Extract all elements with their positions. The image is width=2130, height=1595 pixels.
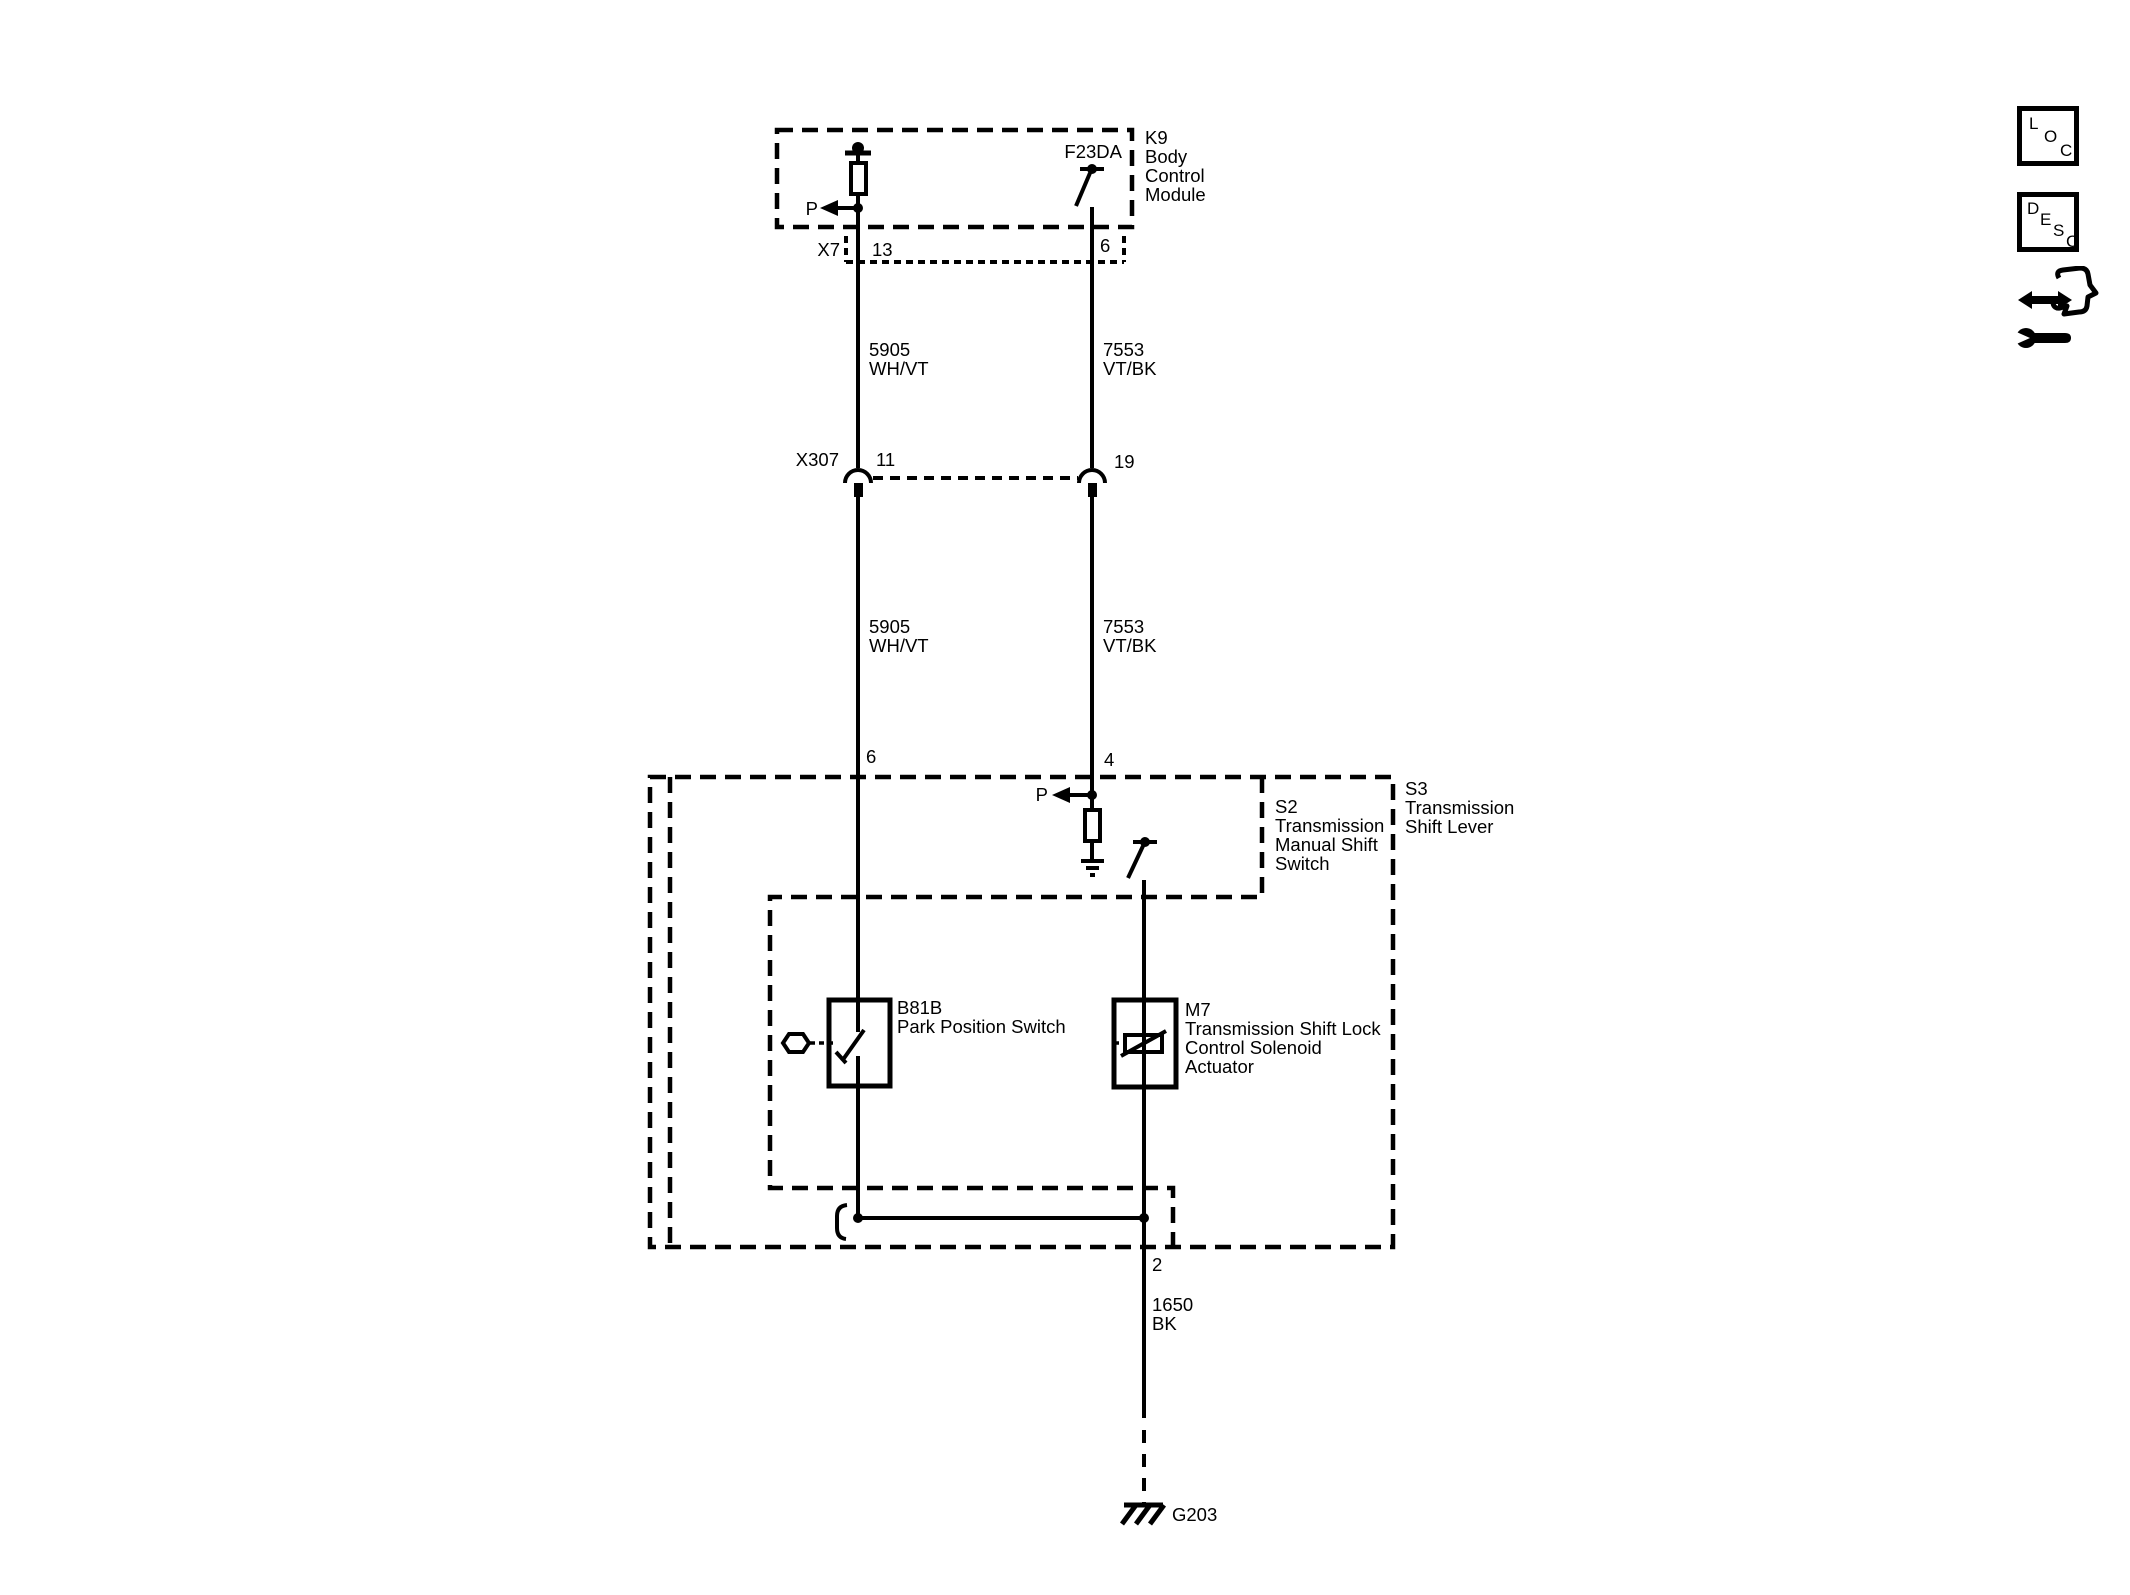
- loc-letter-l: L: [2029, 114, 2038, 134]
- desc-button[interactable]: D E S C: [2017, 192, 2079, 252]
- b81b-switch-blade: [842, 1030, 864, 1061]
- flip-arrow-outline-icon: [2053, 268, 2096, 314]
- s3-name-line2: Shift Lever: [1405, 816, 1493, 837]
- circuit-number: 7553: [1103, 616, 1144, 637]
- x307-pin-11-label: 11: [876, 449, 895, 470]
- k9-ref-label: K9: [1145, 127, 1168, 148]
- wrench-handle-icon: [2032, 333, 2071, 343]
- m7-name-line1: Transmission Shift Lock: [1185, 1018, 1381, 1039]
- f23da-label: F23DA: [1064, 141, 1122, 162]
- circuit-number: 1650: [1152, 1294, 1193, 1315]
- circuit-number: 5905: [869, 616, 910, 637]
- shift-lock-wiring-schematic: K9 Body Control Module F23DA P X7 13 6 5…: [0, 0, 2130, 1595]
- junction-dot: [1139, 1213, 1149, 1223]
- k9-park-signal-label: P: [806, 198, 818, 219]
- s3-pin-6-label: 6: [866, 746, 876, 767]
- m7-shift-lock-solenoid-actuator: M7 Transmission Shift Lock Control Solen…: [1114, 999, 1381, 1087]
- wire-7553-upper-label: 7553 VT/BK: [1103, 339, 1157, 379]
- x307-right-socket-arc: [1079, 470, 1105, 483]
- p-arrow-head-icon: [820, 200, 838, 216]
- desc-letter-d: D: [2027, 199, 2039, 219]
- m7-pin-2-label: 2: [1152, 1254, 1162, 1275]
- internal-ground-jumper: [837, 1205, 1149, 1239]
- x307-left-pin: [854, 483, 863, 497]
- k9-name-line3: Module: [1145, 184, 1206, 205]
- x307-connector: X307 11 19: [796, 449, 1135, 497]
- splice-clip-icon: [837, 1205, 847, 1239]
- wiring-diagram-page: K9 Body Control Module F23DA P X7 13 6 5…: [0, 0, 2130, 1595]
- pulldown-resistor-symbol: [1085, 810, 1100, 841]
- b81b-name-label: Park Position Switch: [897, 1016, 1066, 1037]
- driver-switch-blade: [1076, 173, 1090, 206]
- junction-dot: [853, 1213, 863, 1223]
- chassis-ground-hash-1: [1122, 1505, 1136, 1524]
- circuit-color: VT/BK: [1103, 635, 1157, 656]
- x307-right-pin: [1088, 483, 1097, 497]
- circuit-color: WH/VT: [869, 635, 929, 656]
- wire-5905-upper-label: 5905 WH/VT: [869, 339, 929, 379]
- desc-letter-s: S: [2053, 221, 2064, 241]
- s2-park-signal-label: P: [1036, 784, 1048, 805]
- mechanical-actuator-icon: [783, 1034, 809, 1052]
- m7-ref-label: M7: [1185, 999, 1211, 1020]
- x7-pin-13-label: 13: [872, 239, 893, 260]
- p-arrow-head-icon: [1052, 787, 1070, 803]
- loc-button[interactable]: L O C: [2017, 106, 2079, 166]
- desc-letter-e: E: [2040, 210, 2051, 230]
- x7-pin-6-label: 6: [1100, 235, 1110, 256]
- desc-letter-c: C: [2066, 232, 2078, 252]
- circuit-color: VT/BK: [1103, 358, 1157, 379]
- circuit-number: 5905: [869, 339, 910, 360]
- s2-switch-outline: [670, 777, 1262, 1247]
- s2-name-line3: Switch: [1275, 853, 1330, 874]
- pullup-resistor-symbol: [851, 163, 866, 194]
- s2-transmission-manual-shift-switch: P S2 Transmission Manual Shift Switch: [670, 777, 1384, 1247]
- loc-letter-o: O: [2044, 127, 2057, 147]
- x7-ref-label: X7: [817, 239, 840, 260]
- wire-5905-lower-label: 5905 WH/VT: [869, 616, 929, 656]
- chassis-ground-hash-2: [1136, 1505, 1150, 1524]
- x7-connector: X7 13 6: [817, 235, 1124, 262]
- s3-name-line1: Transmission: [1405, 797, 1514, 818]
- switch-blade: [1128, 846, 1143, 878]
- s2-name-line1: Transmission: [1275, 815, 1384, 836]
- s3-ref-label: S3: [1405, 778, 1428, 799]
- x307-left-socket-arc: [845, 470, 871, 483]
- m7-name-line2: Control Solenoid: [1185, 1037, 1322, 1058]
- chassis-ground-hash-3: [1150, 1505, 1164, 1524]
- m7-name-line3: Actuator: [1185, 1056, 1254, 1077]
- loc-letter-c: C: [2060, 141, 2072, 161]
- s2-name-line2: Manual Shift: [1275, 834, 1378, 855]
- circuit-color: WH/VT: [869, 358, 929, 379]
- s3-transmission-shift-lever: S3 Transmission Shift Lever: [650, 777, 1514, 1247]
- k9-name-line2: Control: [1145, 165, 1205, 186]
- x307-pin-19-label: 19: [1114, 451, 1135, 472]
- k9-name-line1: Body: [1145, 146, 1188, 167]
- circuit-color: BK: [1152, 1313, 1177, 1334]
- wire-7553-lower-label: 7553 VT/BK: [1103, 616, 1157, 656]
- schematic-navigation-button[interactable]: [2008, 266, 2103, 361]
- b81b-ref-label: B81B: [897, 997, 942, 1018]
- x307-ref-label: X307: [796, 449, 839, 470]
- b81b-park-position-switch: B81B Park Position Switch: [783, 997, 1066, 1218]
- power-feed-dot: [852, 142, 864, 154]
- k9-body-control-module: K9 Body Control Module F23DA P: [777, 127, 1206, 227]
- junction-dot: [1087, 790, 1097, 800]
- ground-run-g203: 2 1650 BK G203: [1122, 1254, 1217, 1525]
- s3-pin-4-label: 4: [1104, 749, 1114, 770]
- s2-ref-label: S2: [1275, 796, 1298, 817]
- circuit-number: 7553: [1103, 339, 1144, 360]
- g203-ref-label: G203: [1172, 1504, 1217, 1525]
